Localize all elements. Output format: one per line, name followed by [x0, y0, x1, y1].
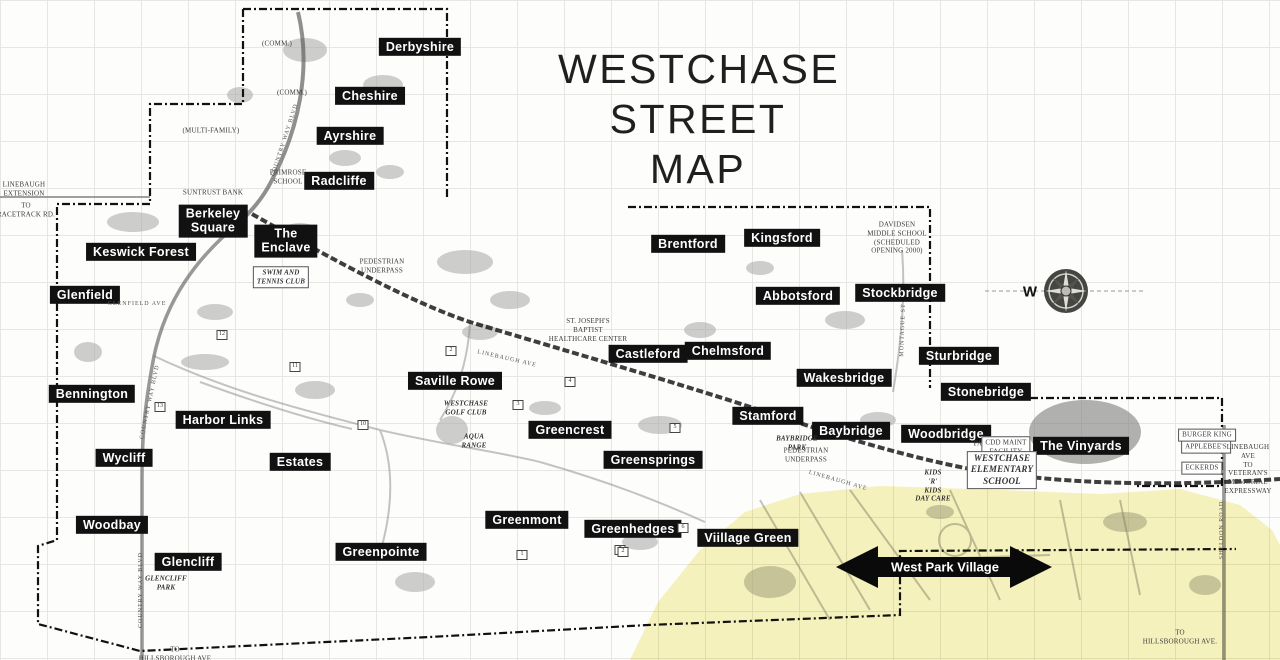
place-label-the-vinyards: The Vinyards — [1033, 437, 1129, 455]
small-label-pedestrian-underpass-1: PEDESTRIAN UNDERPASS — [360, 257, 405, 275]
small-label-comm-2: (COMM.) — [277, 89, 307, 98]
place-label-greenhedges: Greenhedges — [584, 520, 681, 538]
west-park-village-label: West Park Village — [891, 560, 999, 575]
small-label-aqua-range: AQUA RANGE — [461, 432, 486, 450]
road-label-sheldon-road: SHELDON ROAD — [1219, 501, 1225, 560]
place-label-brentford: Brentford — [651, 235, 725, 253]
place-label-greencrest: Greencrest — [528, 421, 611, 439]
page-title: WESTCHASE STREET MAP — [558, 44, 838, 194]
small-label-linebaugh-extension: LINEBAUGH EXTENSION — [3, 180, 46, 198]
golf-hole-marker-1: 1 — [517, 550, 528, 560]
place-label-wycliff: Wycliff — [96, 449, 153, 467]
small-label-westchase-golf-club: WESTCHASE GOLF CLUB — [444, 399, 488, 417]
place-label-chelmsford: Chelmsford — [685, 342, 771, 360]
place-label-greensprings: Greensprings — [604, 451, 703, 469]
place-label-abbotsford: Abbotsford — [756, 287, 840, 305]
place-label-wakesbridge: Wakesbridge — [797, 369, 892, 387]
place-label-stonebridge: Stonebridge — [941, 383, 1031, 401]
place-label-keswick-forest: Keswick Forest — [86, 243, 196, 261]
place-label-greenpointe: Greenpointe — [336, 543, 427, 561]
place-label-sturbridge: Sturbridge — [919, 347, 999, 365]
small-label-burger-king: BURGER KING — [1178, 429, 1236, 442]
small-label-glencliff-park: GLENCLIFF PARK — [145, 574, 187, 592]
small-label-pedestrian-underpass-2: PEDESTRIAN UNDERPASS — [784, 446, 829, 464]
golf-hole-marker-5: 5 — [670, 423, 681, 433]
small-label-westchase-elementary: WESTCHASE ELEMENTARY SCHOOL — [967, 451, 1037, 489]
small-label-multi-family: (MULTI-FAMILY) — [183, 127, 240, 136]
golf-hole-marker-11: 11 — [290, 362, 301, 372]
golf-hole-marker-13: 13 — [155, 402, 166, 412]
small-label-to-racetrack-rd: TO RACETRACK RD. — [0, 201, 55, 219]
small-label-to-hillsborough-sw: TO HILLSBOROUGH AVE — [139, 645, 212, 660]
place-label-ayrshire: Ayrshire — [317, 127, 384, 145]
small-label-comm-1: (COMM.) — [262, 40, 292, 49]
place-label-estates: Estates — [270, 453, 331, 471]
place-label-village-green: Viillage Green — [697, 529, 798, 547]
place-label-woodbay: Woodbay — [76, 516, 148, 534]
title-line-1: WESTCHASE — [558, 44, 838, 94]
place-label-stockbridge: Stockbridge — [855, 284, 945, 302]
place-label-glencliff: Glencliff — [155, 553, 222, 571]
place-label-baybridge: Baybridge — [812, 422, 890, 440]
place-label-saville-rowe: Saville Rowe — [408, 372, 502, 390]
golf-hole-marker-10: 10 — [358, 420, 369, 430]
golf-hole-marker-3: 3 — [513, 400, 524, 410]
title-line-2: STREET MAP — [558, 94, 838, 194]
small-label-linebaugh-to-veterans: LINEBAUGH AVE TO VETERAN'S MEMORIAL EXPR… — [1224, 443, 1271, 496]
place-label-derbyshire: Derbyshire — [379, 38, 461, 56]
small-label-swim-tennis-club: SWIM AND TENNIS CLUB — [253, 266, 309, 288]
compass-west-letter: W — [1023, 284, 1037, 301]
road-label-glenfield-ave: GLENFIELD AVE — [108, 301, 167, 307]
small-label-st-josephs: ST. JOSEPH'S BAPTIST HEALTHCARE CENTER — [549, 317, 627, 343]
place-label-the-enclave: The Enclave — [254, 225, 317, 258]
compass-rose-icon — [1042, 267, 1090, 320]
place-label-radcliffe: Radcliffe — [304, 172, 374, 190]
small-label-kids-r-kids: KIDS 'R' KIDS DAY CARE — [915, 469, 950, 504]
small-label-eckerds: ECKERDS — [1181, 462, 1222, 475]
place-label-greenmont: Greenmont — [485, 511, 568, 529]
place-label-castleford: Castleford — [609, 345, 688, 363]
small-label-davidsen-middle-school: DAVIDSEN MIDDLE SCHOOL (SCHEDULED OPENIN… — [867, 221, 927, 256]
westchase-street-map: WESTCHASE STREET MAP W West Park Village… — [0, 0, 1280, 660]
place-label-harbor-links: Harbor Links — [176, 411, 271, 429]
place-label-stamford: Stamford — [732, 407, 803, 425]
golf-hole-marker-2: 2 — [618, 547, 629, 557]
place-label-kingsford: Kingsford — [744, 229, 820, 247]
small-label-suntrust-bank: SUNTRUST BANK — [183, 189, 243, 198]
road-label-country-way-blvd-s: COUNTRY WAY BLVD — [138, 552, 144, 628]
golf-hole-marker-4: 4 — [565, 377, 576, 387]
golf-hole-marker-6: 6 — [678, 523, 689, 533]
golf-hole-marker-12: 12 — [217, 330, 228, 340]
place-label-berkeley-square: Berkeley Square — [179, 205, 248, 238]
place-label-cheshire: Cheshire — [335, 87, 405, 105]
golf-hole-marker-2: 2 — [446, 346, 457, 356]
place-label-bennington: Bennington — [49, 385, 135, 403]
small-label-to-hillsborough-se: TO HILLSBOROUGH AVE. — [1143, 628, 1217, 646]
